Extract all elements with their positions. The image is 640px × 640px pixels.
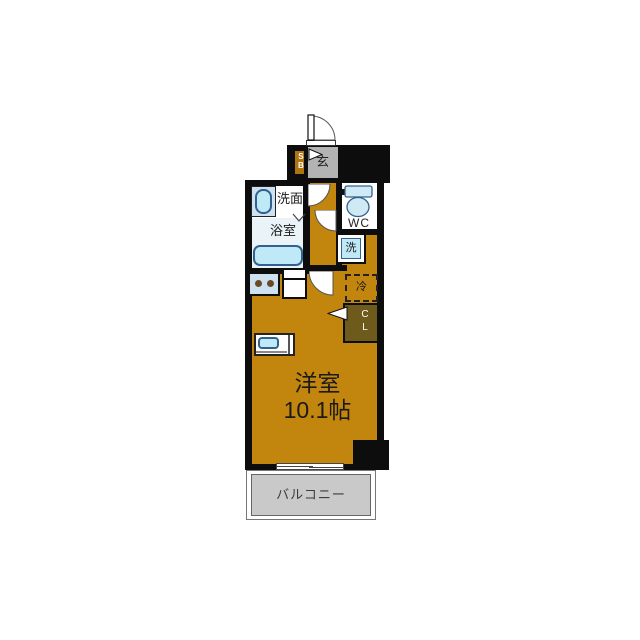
wash-basin (255, 189, 272, 214)
closet-label: CL (359, 309, 370, 335)
fridge-label: 冷 (347, 282, 376, 294)
main-room-size: 10.1帖 (270, 398, 365, 422)
kitchen-stove (248, 272, 280, 296)
washer-label: 洗 (342, 243, 360, 255)
kitchen-sink-front-line (256, 351, 287, 353)
kitchen-counter (282, 268, 307, 299)
window-sash-left (277, 466, 313, 467)
closet: CL (343, 303, 379, 343)
stove-burner-right (267, 280, 274, 287)
room-door-arc (309, 271, 334, 296)
balcony-window (276, 463, 344, 470)
entrance-door-arc (306, 114, 338, 142)
washer-pan: 洗 (341, 238, 361, 259)
main-room-name: 洋室 (270, 371, 365, 395)
toilet-label: WC (344, 217, 374, 230)
bathroom-label: 浴室 (267, 224, 299, 238)
hall-door-arc (308, 184, 332, 208)
washer-space: 洗 (336, 233, 366, 264)
fridge-space: 冷 (345, 274, 378, 302)
bathtub (253, 245, 303, 266)
window-sash-right (309, 467, 343, 468)
stove-burner-left (255, 280, 262, 287)
bath-folding-door-mark (292, 213, 306, 222)
washroom-label: 洗面 (275, 192, 305, 206)
main-room-label: 洋室 10.1帖 (270, 371, 365, 422)
entrance-step-arrow (308, 148, 324, 161)
kitchen-sink-edge-line (288, 335, 290, 354)
kitchen-sink-basin (258, 337, 279, 349)
balcony-label: バルコニー (252, 488, 370, 502)
shoe-box: SB (293, 149, 306, 176)
kitchen-sink-unit (254, 333, 295, 356)
shoe-box-label: SB (296, 152, 304, 170)
toilet-icon (339, 185, 376, 218)
closet-door-arrow (327, 306, 348, 321)
balcony: バルコニー (251, 474, 371, 516)
pillar-bottom-right (353, 440, 389, 470)
wall-left (245, 180, 252, 470)
kitchen-counter-divider (284, 278, 305, 280)
wc-door-arc (314, 210, 337, 232)
